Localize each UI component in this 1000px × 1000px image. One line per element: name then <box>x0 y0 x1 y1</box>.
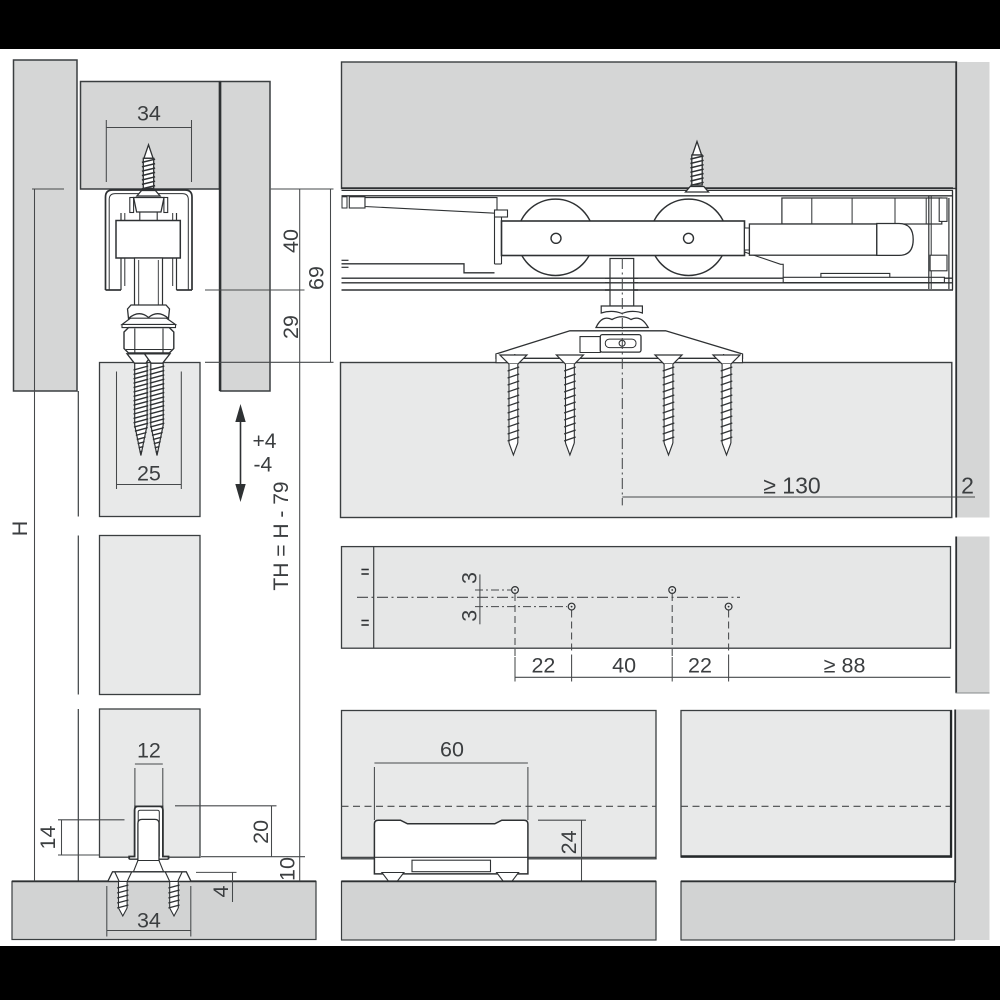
svg-text:H: H <box>8 521 32 537</box>
svg-text:TH = H - 79: TH = H - 79 <box>270 481 293 590</box>
svg-text:24: 24 <box>557 830 581 854</box>
svg-text:34: 34 <box>137 909 161 933</box>
svg-text:10: 10 <box>276 857 300 881</box>
svg-text:3: 3 <box>457 572 481 584</box>
svg-text:3: 3 <box>457 610 481 622</box>
svg-text:22: 22 <box>531 654 555 678</box>
svg-text:25: 25 <box>137 462 161 486</box>
svg-text:≥ 88: ≥ 88 <box>824 654 866 678</box>
svg-text:≥ 130: ≥ 130 <box>763 473 820 499</box>
svg-text:69: 69 <box>305 266 329 290</box>
svg-text:22: 22 <box>688 654 712 678</box>
svg-text:14: 14 <box>36 826 60 850</box>
svg-text:29: 29 <box>279 315 303 339</box>
svg-text:-4: -4 <box>254 454 273 477</box>
svg-text:4: 4 <box>209 885 233 897</box>
svg-text:2: 2 <box>961 473 974 499</box>
svg-text:40: 40 <box>612 654 636 678</box>
svg-text:12: 12 <box>137 739 161 763</box>
svg-text:34: 34 <box>137 102 161 126</box>
svg-text:60: 60 <box>440 738 464 762</box>
svg-text:+4: +4 <box>253 430 277 453</box>
svg-text:20: 20 <box>249 820 273 844</box>
svg-text:40: 40 <box>279 229 303 253</box>
